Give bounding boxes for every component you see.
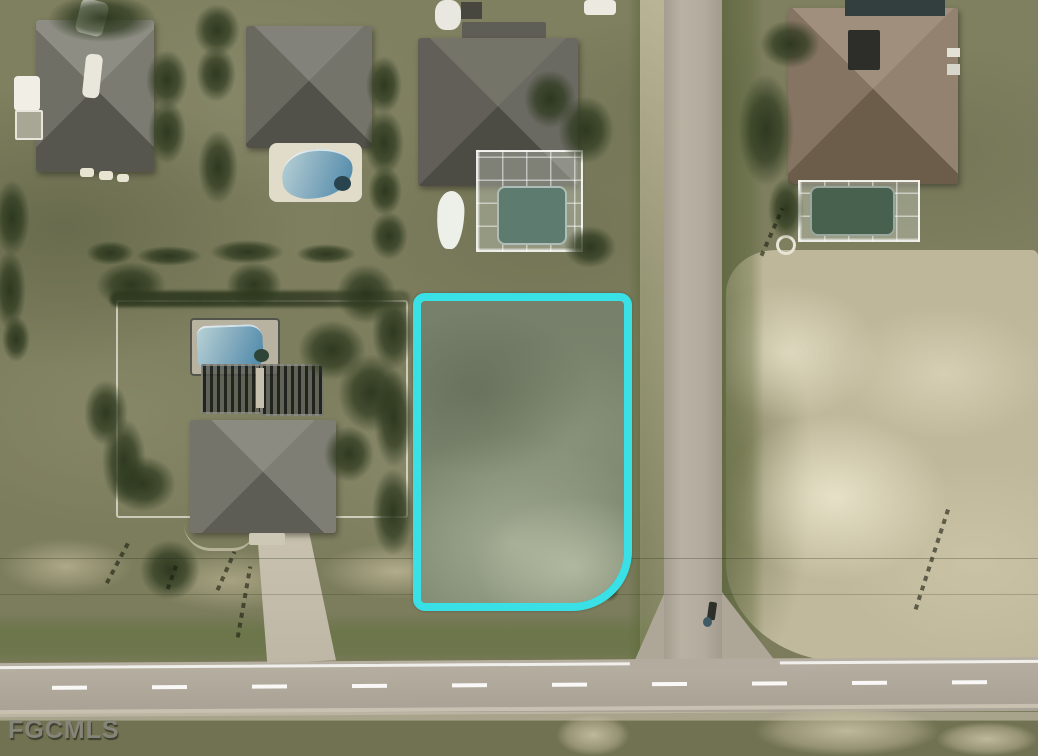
tree xyxy=(198,130,238,204)
tree xyxy=(760,20,820,68)
tree xyxy=(368,166,402,216)
highlighted-lot-boundary xyxy=(413,293,632,611)
bush-row xyxy=(296,244,356,264)
hot-tub xyxy=(334,176,351,191)
truck xyxy=(14,76,40,111)
roof-structure xyxy=(845,0,945,16)
sand-patch xyxy=(556,714,630,756)
pergola xyxy=(201,364,262,414)
tree xyxy=(564,226,616,268)
aerial-photo[interactable]: FGCMLS xyxy=(0,0,1038,756)
enclosure-pool xyxy=(810,186,895,236)
tree xyxy=(366,56,402,114)
road-center-dashes xyxy=(0,680,1038,690)
equipment xyxy=(947,48,960,57)
vertical-road xyxy=(664,0,722,662)
tree-shadow xyxy=(738,74,794,186)
patio-furniture xyxy=(117,174,129,182)
tree xyxy=(226,262,282,308)
tree xyxy=(196,46,236,102)
house-roof-midleft xyxy=(190,420,336,533)
tree xyxy=(370,212,408,260)
front-stoop xyxy=(249,533,285,545)
tree xyxy=(96,262,166,308)
tree xyxy=(148,100,186,164)
vehicle xyxy=(584,0,616,15)
patio-furniture xyxy=(99,171,113,180)
deck xyxy=(256,368,264,408)
bush-row xyxy=(136,246,202,266)
road-edge-line-gap xyxy=(630,658,780,668)
tree xyxy=(372,294,414,370)
trailer xyxy=(15,110,43,140)
tree xyxy=(558,96,614,164)
tree xyxy=(324,426,374,482)
tree xyxy=(140,540,200,600)
debris xyxy=(703,617,712,627)
house-roof-2 xyxy=(246,26,372,148)
sand-patch xyxy=(936,722,1038,756)
bush-row xyxy=(210,240,284,264)
hot-tub xyxy=(254,349,269,362)
sand-patch xyxy=(754,706,940,756)
patio-furniture xyxy=(80,168,94,177)
enclosure-pool xyxy=(497,186,567,245)
tree xyxy=(372,468,414,556)
equipment xyxy=(947,64,960,75)
tree xyxy=(374,370,414,468)
boat-trailer xyxy=(435,0,461,30)
boat xyxy=(436,190,466,249)
tree xyxy=(2,316,30,362)
tree xyxy=(0,180,30,256)
tree xyxy=(110,456,176,512)
sand-area xyxy=(726,250,1038,662)
entry-courtyard xyxy=(848,30,880,70)
shed xyxy=(461,2,482,19)
watermark: FGCMLS xyxy=(8,716,120,745)
